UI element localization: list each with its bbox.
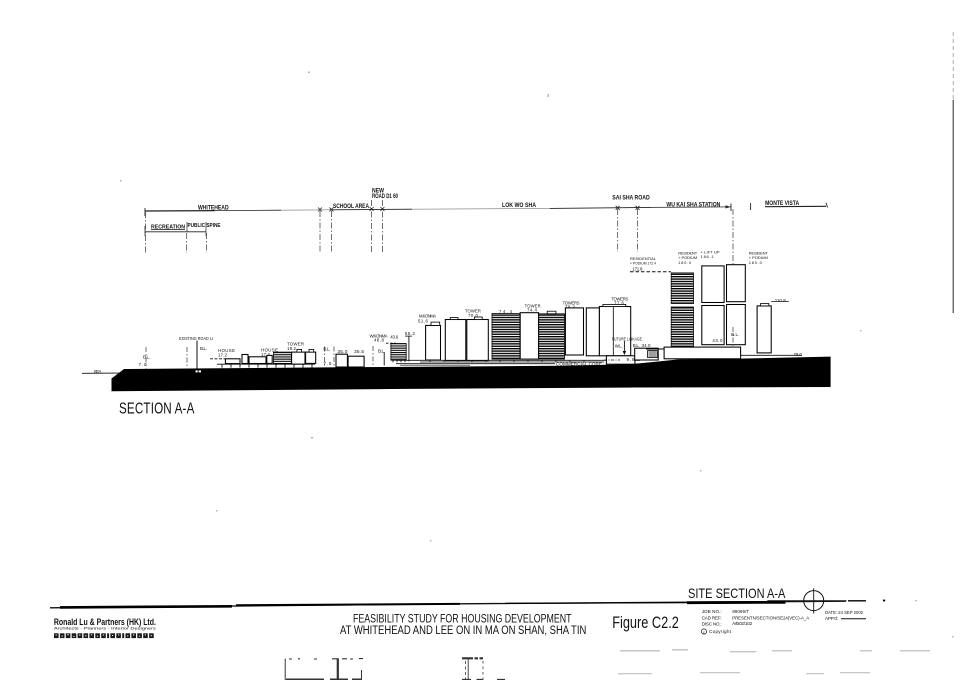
svg-text:Figure C2.2: Figure C2.2 xyxy=(612,614,679,632)
svg-text:19.2: 19.2 xyxy=(287,346,297,351)
svg-text:A/B02/102: A/B02/102 xyxy=(732,621,752,626)
svg-text:Architects · Planners · Interi: Architects · Planners · Interior Designe… xyxy=(54,626,156,630)
svg-text:99069/T: 99069/T xyxy=(732,609,749,614)
svg-text:110.8: 110.8 xyxy=(775,298,787,303)
svg-text:AT WHITEHEAD AND LEE ON IN MA: AT WHITEHEAD AND LEE ON IN MA ON SHAN, S… xyxy=(340,625,586,637)
svg-text:51.6: 51.6 xyxy=(418,319,429,324)
svg-text:SCHOOL AREA: SCHOOL AREA xyxy=(333,203,369,210)
svg-text:B.L.: B.L. xyxy=(143,355,150,360)
svg-text:186.1: 186.1 xyxy=(701,254,715,259)
svg-text:B.L.: B.L. xyxy=(633,343,640,348)
svg-text:SECTION A-A: SECTION A-A xyxy=(119,401,195,418)
svg-text:CAD REF:: CAD REF: xyxy=(702,616,722,621)
svg-text:7.5: 7.5 xyxy=(323,361,331,366)
svg-text:9.8: 9.8 xyxy=(627,357,635,362)
svg-text:180.0: 180.0 xyxy=(678,260,692,265)
svg-text:MONTE VISTA: MONTE VISTA xyxy=(765,200,799,207)
svg-text:Copyright: Copyright xyxy=(709,629,732,634)
svg-text:c: c xyxy=(703,630,705,634)
svg-text:171.8: 171.8 xyxy=(632,266,643,271)
svg-text:B.L.: B.L. xyxy=(731,332,739,337)
svg-text:17.2: 17.2 xyxy=(218,352,228,357)
svg-text:7.0: 7.0 xyxy=(139,362,147,367)
svg-text:DATE: 24 SEP 2002: DATE: 24 SEP 2002 xyxy=(825,610,863,615)
svg-text:JOB NO.:: JOB NO.: xyxy=(702,609,722,614)
svg-text:PUBLIC SPINE: PUBLIC SPINE xyxy=(188,223,221,229)
svg-text:34.0: 34.0 xyxy=(642,343,652,348)
svg-text:58.2: 58.2 xyxy=(405,331,416,336)
svg-text:B.L.: B.L. xyxy=(323,346,330,351)
svg-text:74.4: 74.4 xyxy=(527,308,538,313)
svg-text:ROAD D1 60: ROAD D1 60 xyxy=(372,193,398,200)
svg-text:COMMERCIAL CORE: COMMERCIAL CORE xyxy=(556,361,602,367)
svg-text:FEASIBILITY STUDY FOR HOUSING: FEASIBILITY STUDY FOR HOUSING DEVELOPMEN… xyxy=(353,614,572,626)
svg-text:WU KAI SHA STATION: WU KAI SHA STATION xyxy=(666,202,720,209)
svg-text:17.2: 17.2 xyxy=(261,352,271,357)
svg-text:SEA: SEA xyxy=(94,369,103,374)
svg-text:FUTURE LINKAGE: FUTURE LINKAGE xyxy=(612,336,642,341)
svg-text:LOK WO SHA: LOK WO SHA xyxy=(502,202,536,209)
svg-text:+ PODIUM 172.4: + PODIUM 172.4 xyxy=(630,261,657,266)
svg-text:43.0: 43.0 xyxy=(712,338,723,343)
svg-text:APP'd:: APP'd: xyxy=(825,616,838,621)
svg-text:180.0: 180.0 xyxy=(749,260,763,265)
svg-text:PRESENTN/SECTION/SE24(VEC)-A_A: PRESENTN/SECTION/SE24(VEC)-A_A xyxy=(732,615,810,620)
svg-text:78.0: 78.0 xyxy=(794,352,803,357)
svg-text:SAI SHA ROAD: SAI SHA ROAD xyxy=(612,195,650,202)
svg-text:EXISTING ROAD LI: EXISTING ROAD LI xyxy=(179,336,213,341)
svg-text:35.5: 35.5 xyxy=(354,349,364,355)
svg-text:WHITEHEAD: WHITEHEAD xyxy=(198,204,229,211)
svg-text:B.L.: B.L. xyxy=(200,346,207,351)
svg-text:DISC NO.:: DISC NO.: xyxy=(702,622,722,627)
svg-text:W.L.: W.L. xyxy=(615,343,623,348)
svg-text:43.6: 43.6 xyxy=(390,335,399,340)
svg-text:SITE SECTION A-A: SITE SECTION A-A xyxy=(688,586,786,601)
svg-text:48.8: 48.8 xyxy=(374,338,385,343)
